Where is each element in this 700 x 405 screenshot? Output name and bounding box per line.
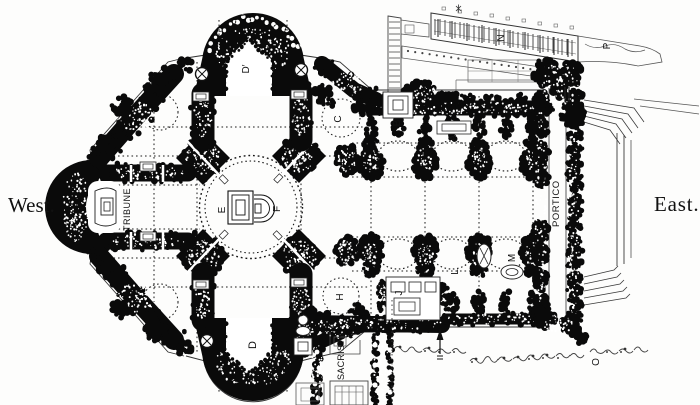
svg-text:L: L (450, 269, 461, 275)
svg-text:O: O (591, 358, 602, 366)
svg-text:E: E (217, 206, 228, 213)
svg-text:D: D (247, 341, 259, 349)
svg-text:B: B (392, 119, 403, 126)
svg-text:J: J (394, 291, 405, 296)
svg-text:TRIBUNE: TRIBUNE (122, 188, 132, 231)
svg-text:G: G (296, 309, 307, 317)
svg-text:PORTICO: PORTICO (551, 180, 562, 227)
svg-text:West.: West. (8, 193, 55, 217)
svg-text:M: M (507, 254, 518, 262)
svg-text:East.: East. (654, 192, 699, 216)
svg-text:F: F (272, 206, 283, 212)
svg-text:C: C (333, 115, 344, 122)
svg-text:A: A (448, 134, 459, 141)
svg-text:D′: D′ (241, 64, 252, 73)
svg-text:H: H (335, 293, 346, 300)
svg-text:P: P (602, 42, 613, 49)
svg-text:N: N (496, 34, 507, 41)
svg-text:SACRISTY: SACRISTY (336, 333, 346, 380)
